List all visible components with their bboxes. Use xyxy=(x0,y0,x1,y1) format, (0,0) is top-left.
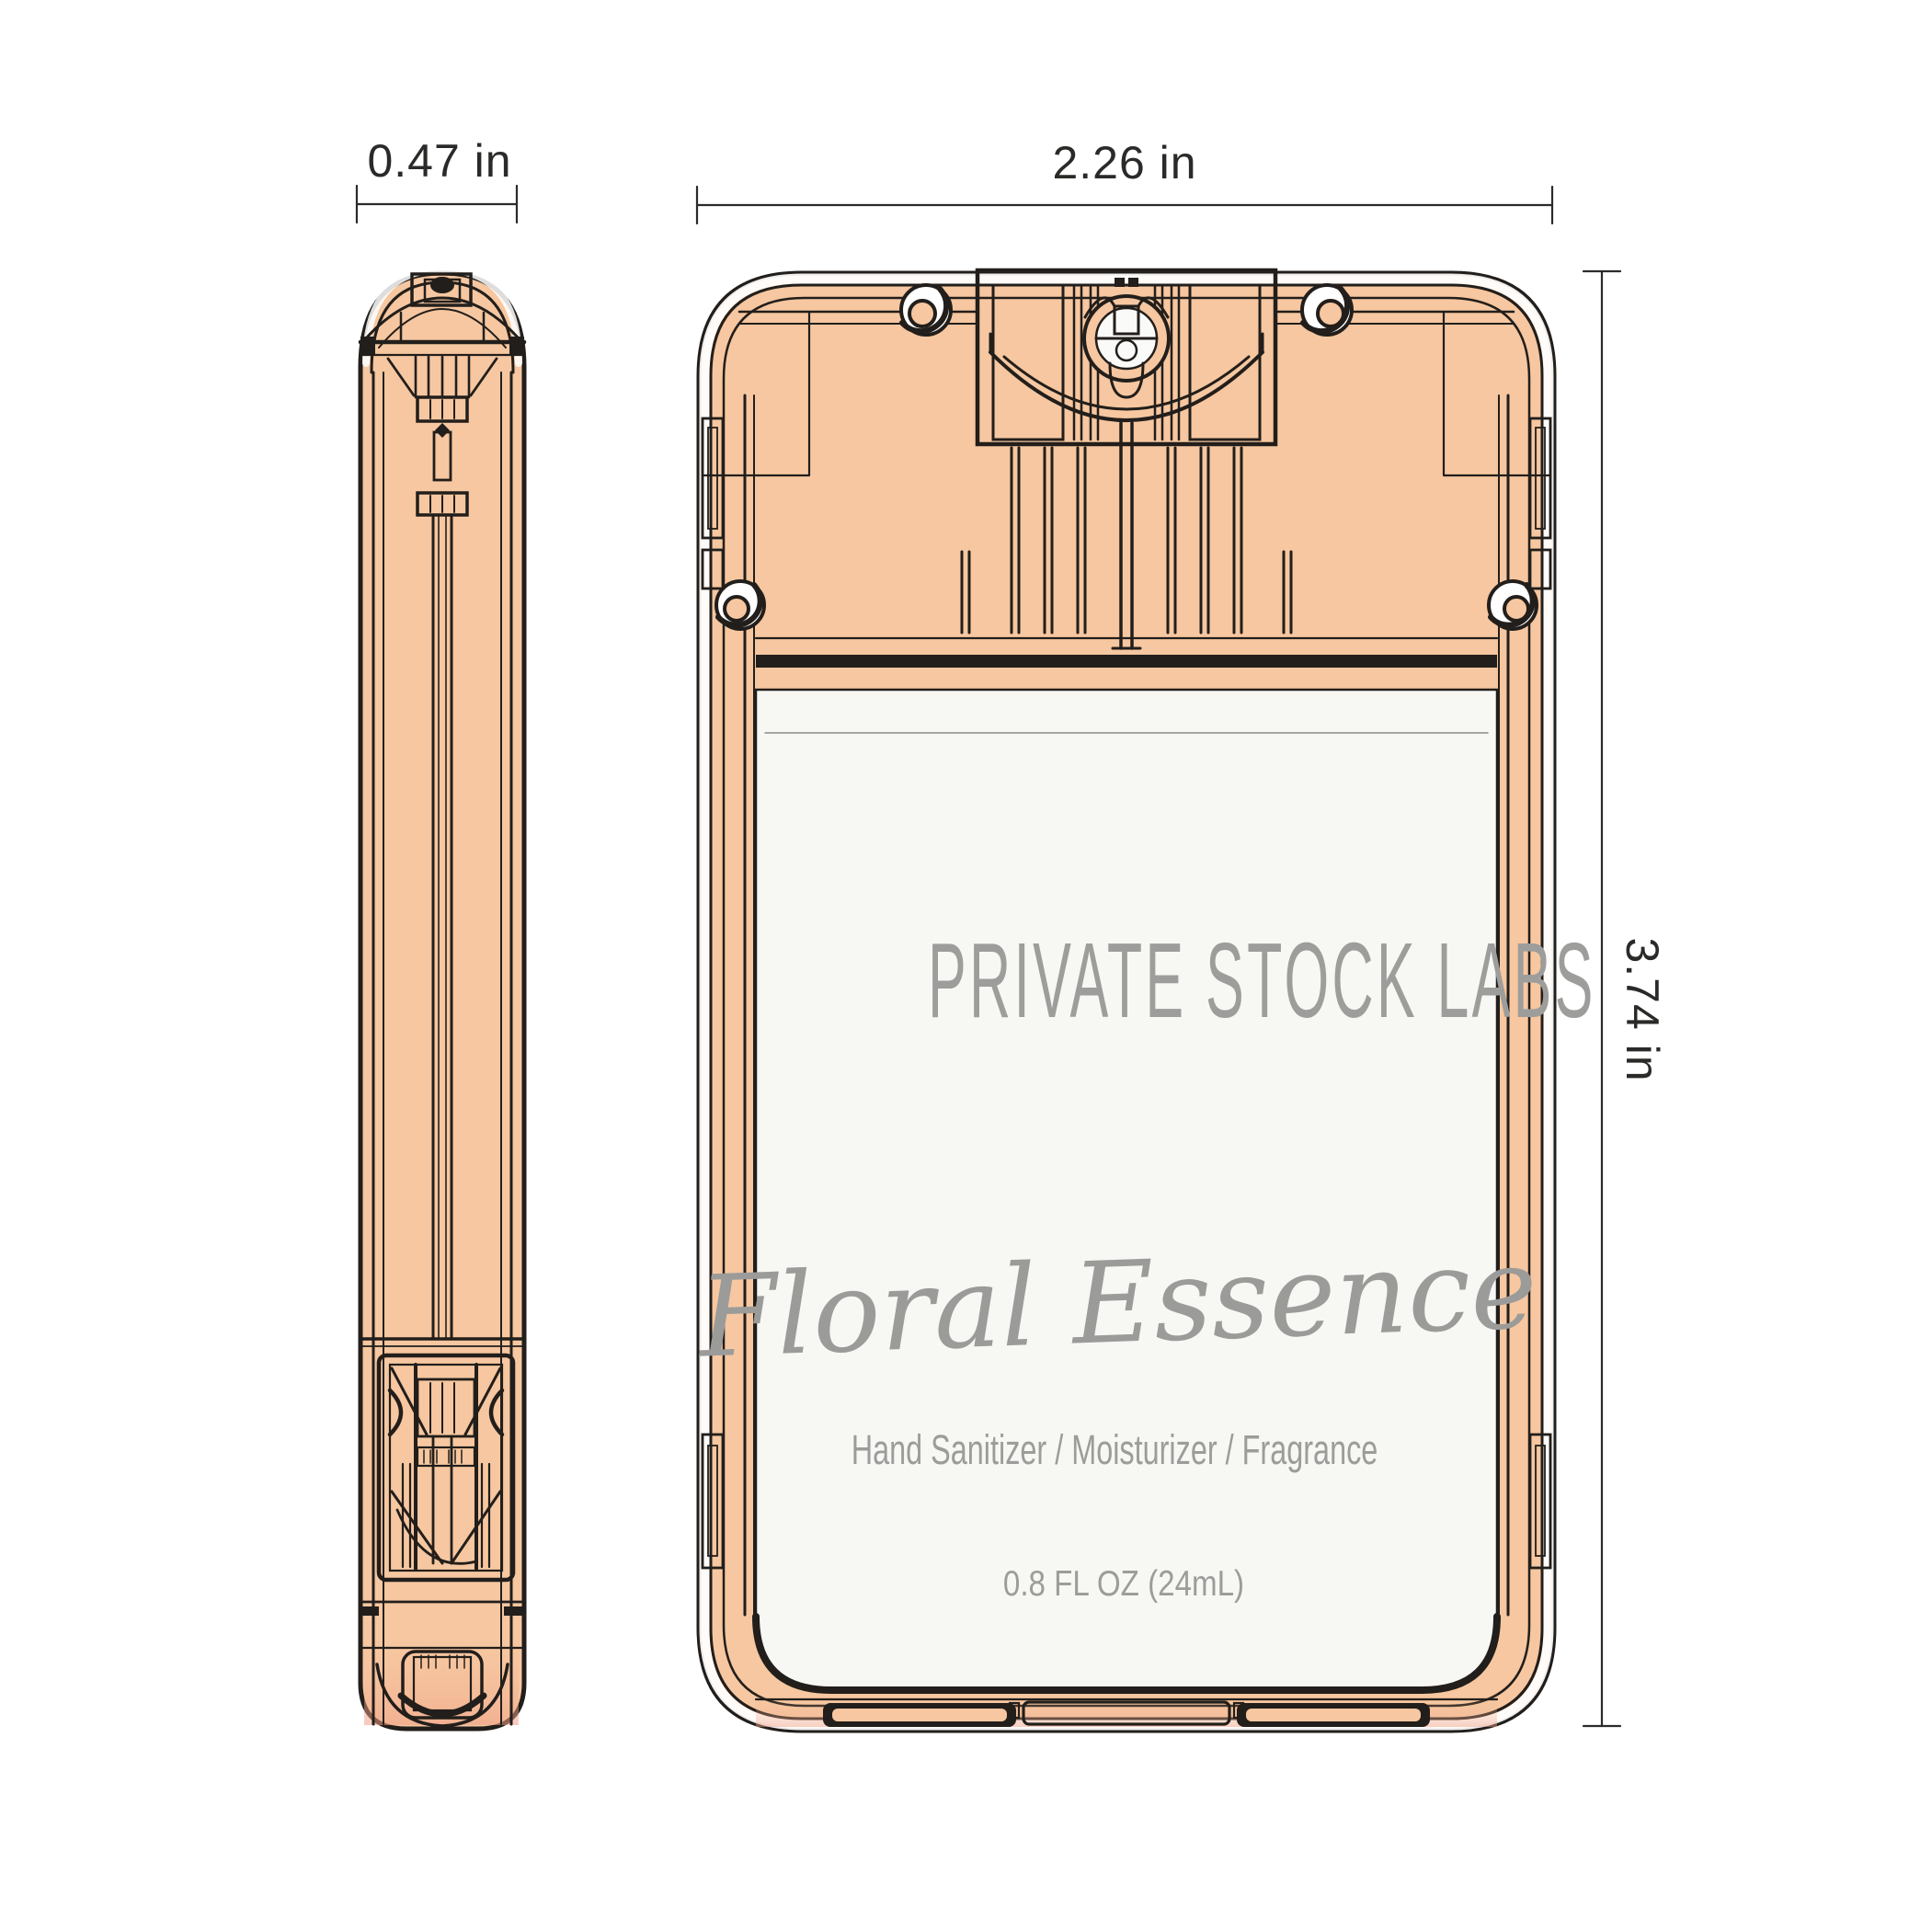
volume-text: 0.8 FL OZ (24mL) xyxy=(929,1560,1320,1608)
scent-name-script: Floral Essence xyxy=(696,1204,1529,1402)
dimension-drawing-page: 0.47 in 2.26 in 3.74 in PRIVATE STOCK LA… xyxy=(0,0,1932,1932)
front-height-dimension-label: 3.74 in xyxy=(1618,890,1667,1129)
front-width-dimension-line xyxy=(697,187,1552,223)
product-types-line: Hand Sanitizer / Moisturizer / Fragrance xyxy=(817,1422,1412,1479)
side-width-dimension-label: 0.47 in xyxy=(320,136,559,186)
front-width-dimension-label: 2.26 in xyxy=(1005,138,1244,188)
side-view-drawing xyxy=(360,269,524,1729)
label-panel xyxy=(756,690,1497,1690)
screw-icon xyxy=(1302,285,1352,335)
brand-name: PRIVATE STOCK LABS xyxy=(928,924,1325,1036)
screw-icon xyxy=(901,285,951,335)
side-width-dimension-line xyxy=(357,186,517,223)
